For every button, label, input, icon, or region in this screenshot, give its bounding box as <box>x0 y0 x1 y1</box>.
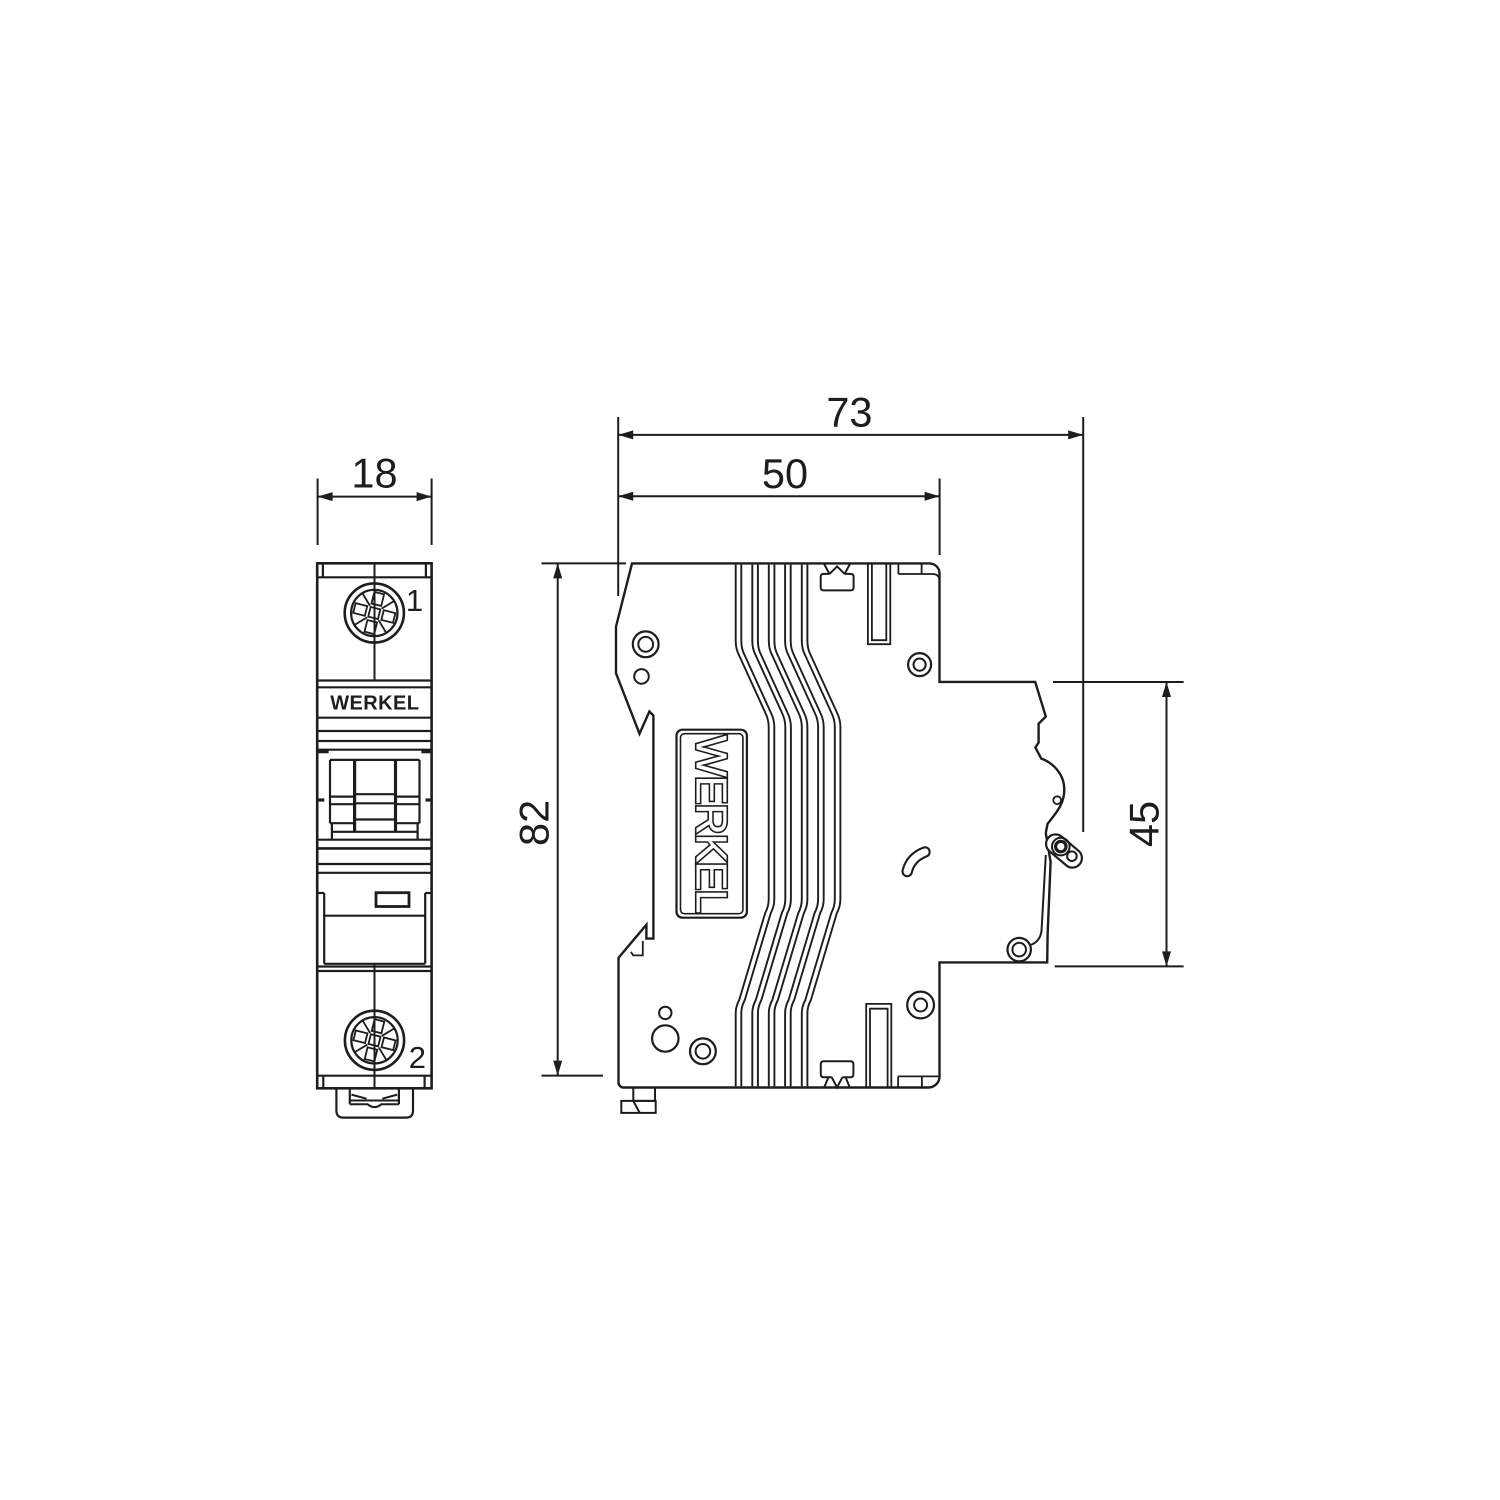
svg-text:WERKEL: WERKEL <box>687 735 736 913</box>
svg-text:50: 50 <box>762 450 808 497</box>
svg-text:WERKEL: WERKEL <box>330 693 419 715</box>
svg-text:45: 45 <box>1121 801 1168 847</box>
svg-text:1: 1 <box>406 583 423 618</box>
svg-text:82: 82 <box>511 800 558 846</box>
svg-text:73: 73 <box>826 389 872 436</box>
svg-text:18: 18 <box>351 450 397 497</box>
svg-text:2: 2 <box>409 1040 426 1075</box>
